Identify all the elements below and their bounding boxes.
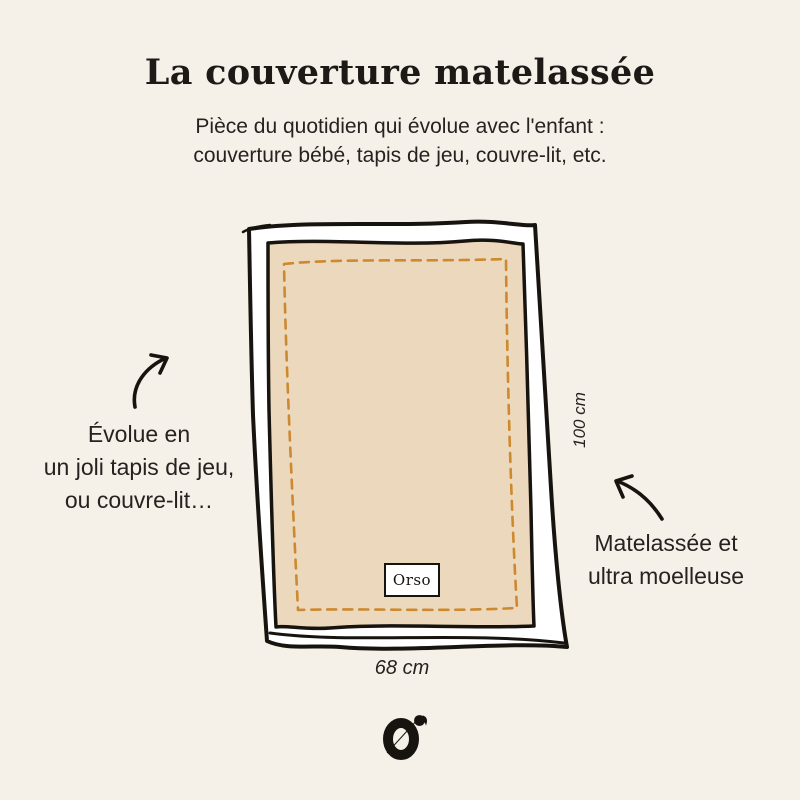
page-subtitle: Pièce du quotidien qui évolue avec l'enf… (0, 112, 800, 170)
infographic-canvas: La couverture matelassée Pièce du quotid… (0, 0, 800, 800)
right-annotation-line-2: ultra moelleuse (546, 560, 786, 593)
left-annotation: Évolue en un joli tapis de jeu, ou couvr… (18, 418, 260, 517)
curved-arrow-right-icon (600, 467, 670, 529)
left-annotation-line-2: un joli tapis de jeu, (18, 451, 260, 484)
page-title: La couverture matelassée (0, 52, 800, 93)
right-annotation: Matelassée et ultra moelleuse (546, 527, 786, 593)
subtitle-line-2: couverture bébé, tapis de jeu, couvre-li… (0, 141, 800, 170)
orso-logo-icon (380, 708, 434, 764)
curved-arrow-left-icon (122, 347, 180, 419)
width-dimension-label: 68 cm (340, 657, 464, 680)
subtitle-line-1: Pièce du quotidien qui évolue avec l'enf… (0, 112, 800, 141)
left-annotation-line-1: Évolue en (18, 418, 260, 451)
left-annotation-line-3: ou couvre-lit… (18, 484, 260, 517)
right-annotation-line-1: Matelassée et (546, 527, 786, 560)
height-dimension-label: 100 cm (570, 370, 590, 470)
blanket-brand-tag: Orso (384, 563, 440, 597)
